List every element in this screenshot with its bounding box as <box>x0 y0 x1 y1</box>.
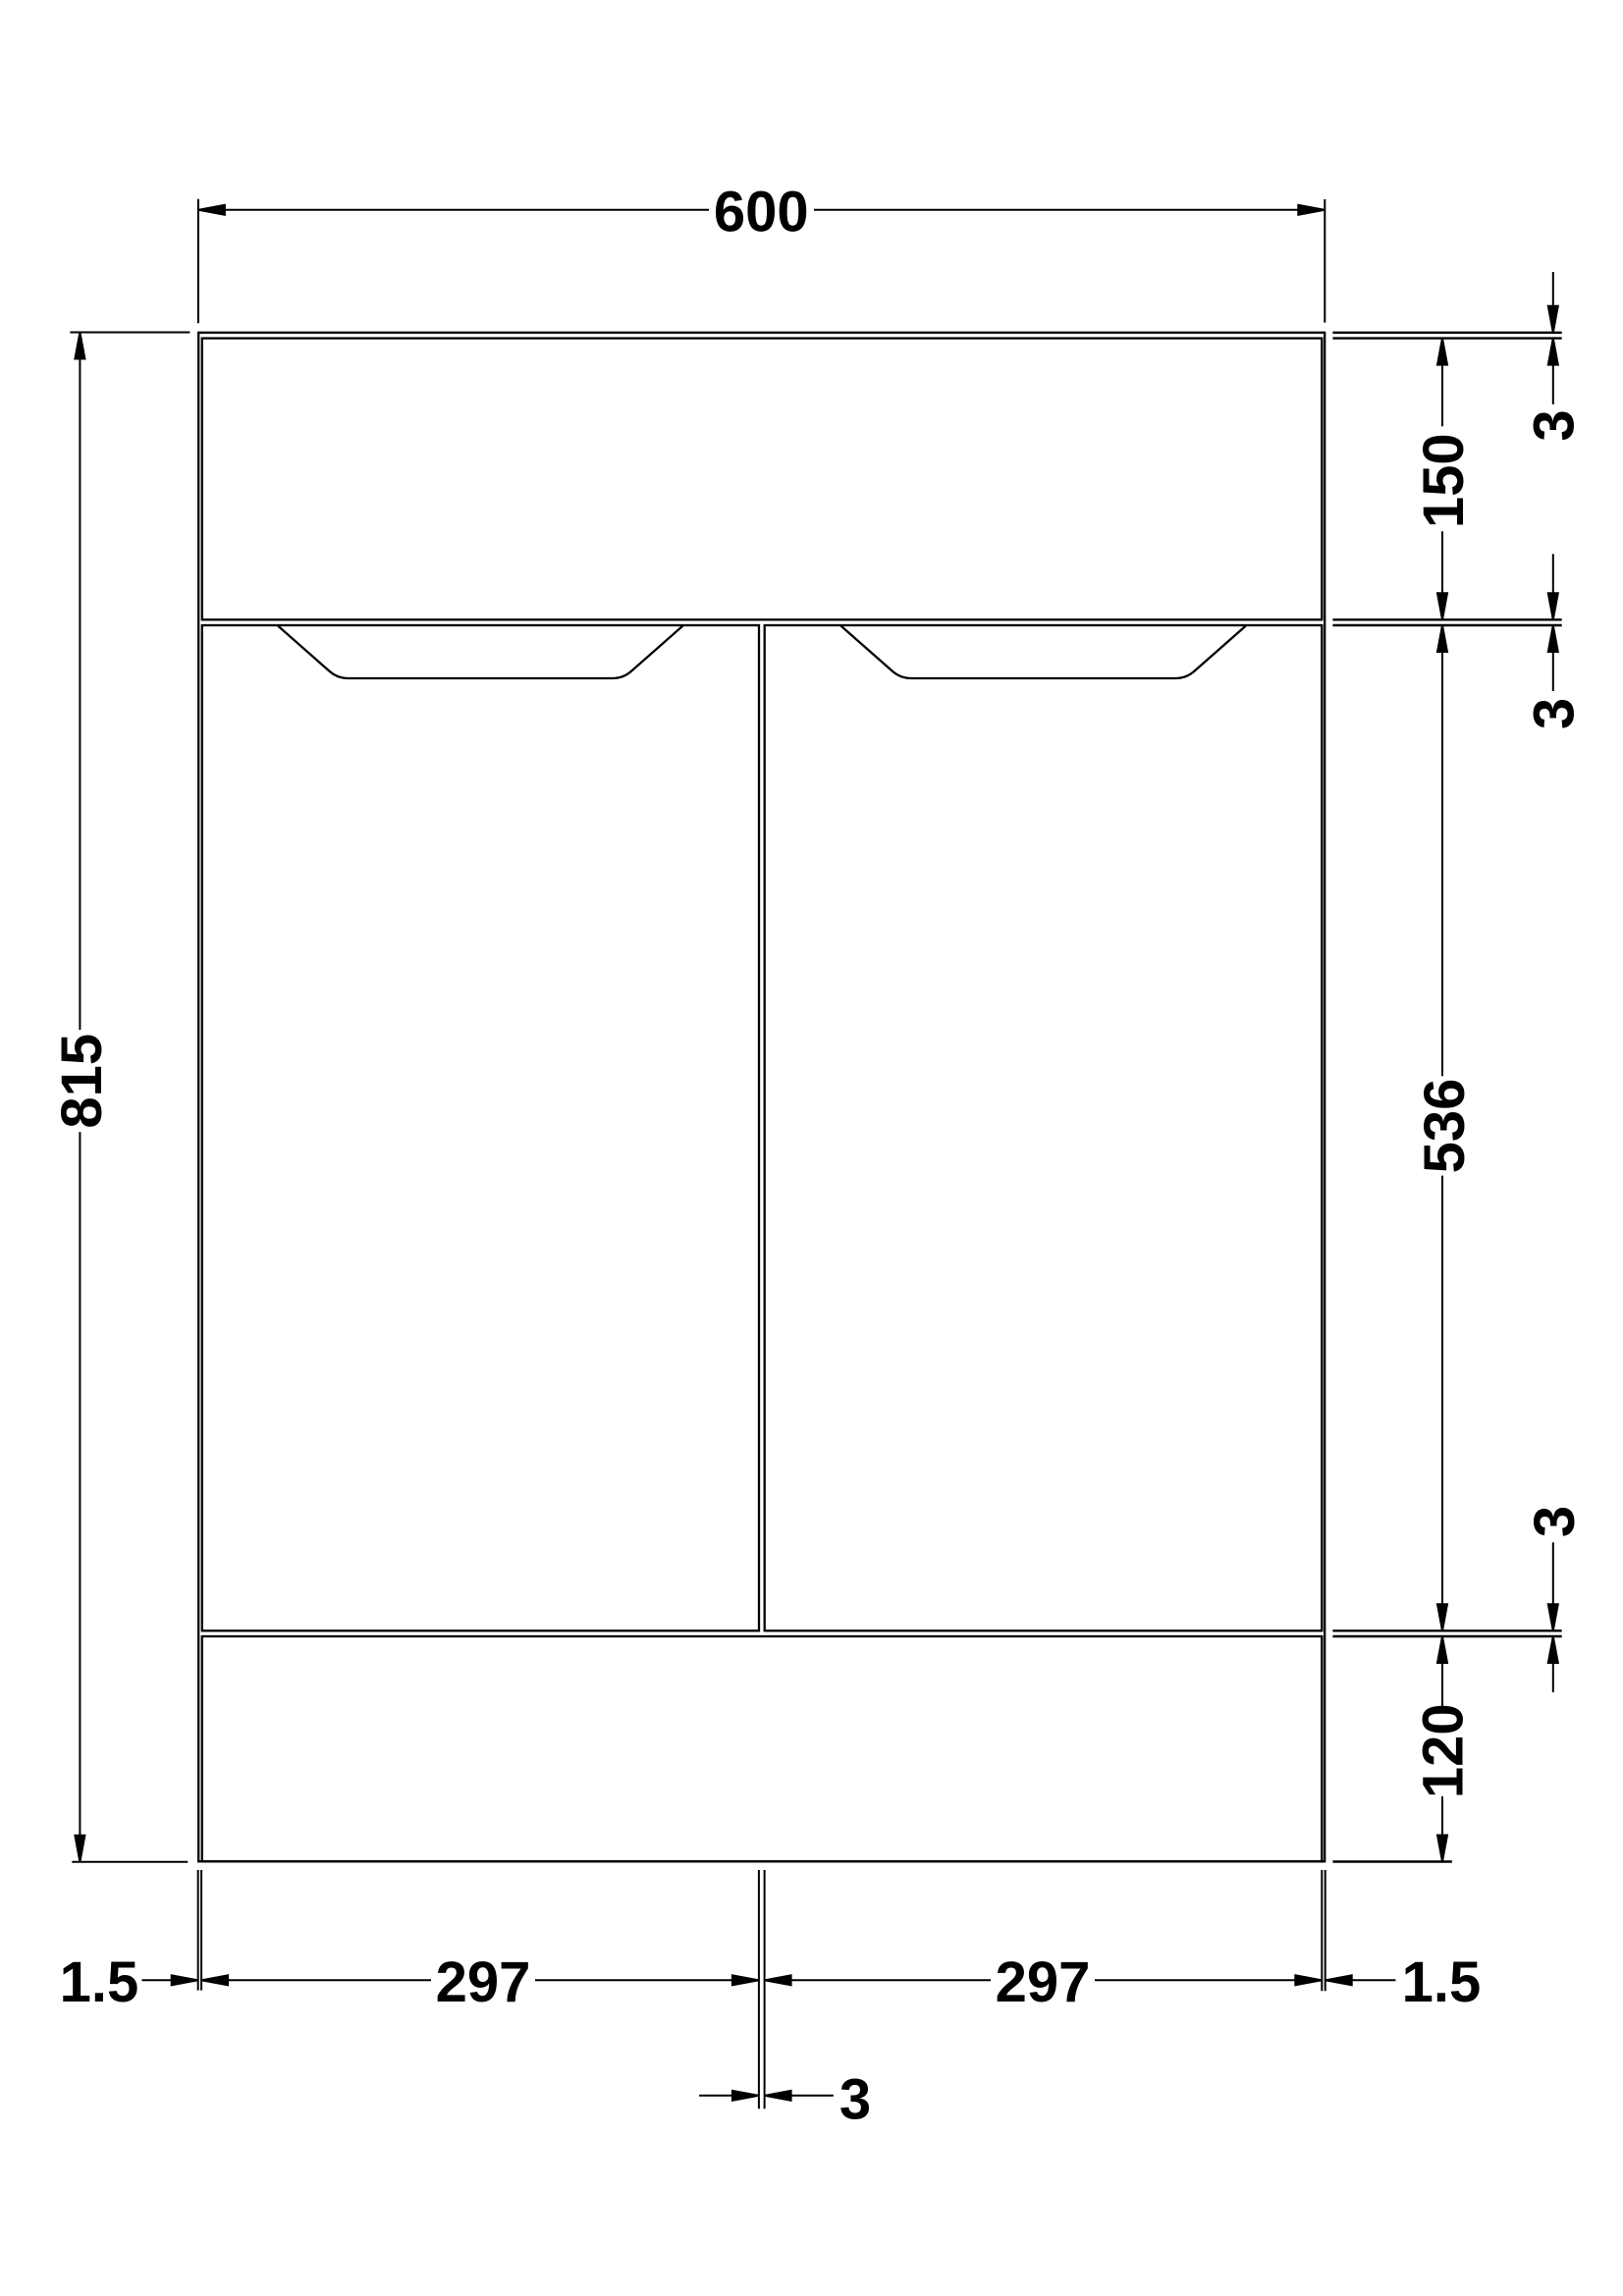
svg-text:3: 3 <box>1523 409 1587 441</box>
svg-text:1.5: 1.5 <box>60 1950 139 2014</box>
svg-text:3: 3 <box>839 2068 871 2132</box>
svg-text:815: 815 <box>50 1034 114 1129</box>
svg-text:536: 536 <box>1413 1079 1477 1174</box>
svg-text:3: 3 <box>1523 1506 1587 1537</box>
svg-text:600: 600 <box>714 180 809 243</box>
svg-text:297: 297 <box>436 1950 531 2014</box>
svg-text:1.5: 1.5 <box>1402 1950 1482 2014</box>
svg-text:297: 297 <box>996 1950 1091 2014</box>
svg-text:150: 150 <box>1412 433 1476 528</box>
svg-text:3: 3 <box>1523 698 1587 729</box>
svg-text:120: 120 <box>1412 1703 1476 1798</box>
